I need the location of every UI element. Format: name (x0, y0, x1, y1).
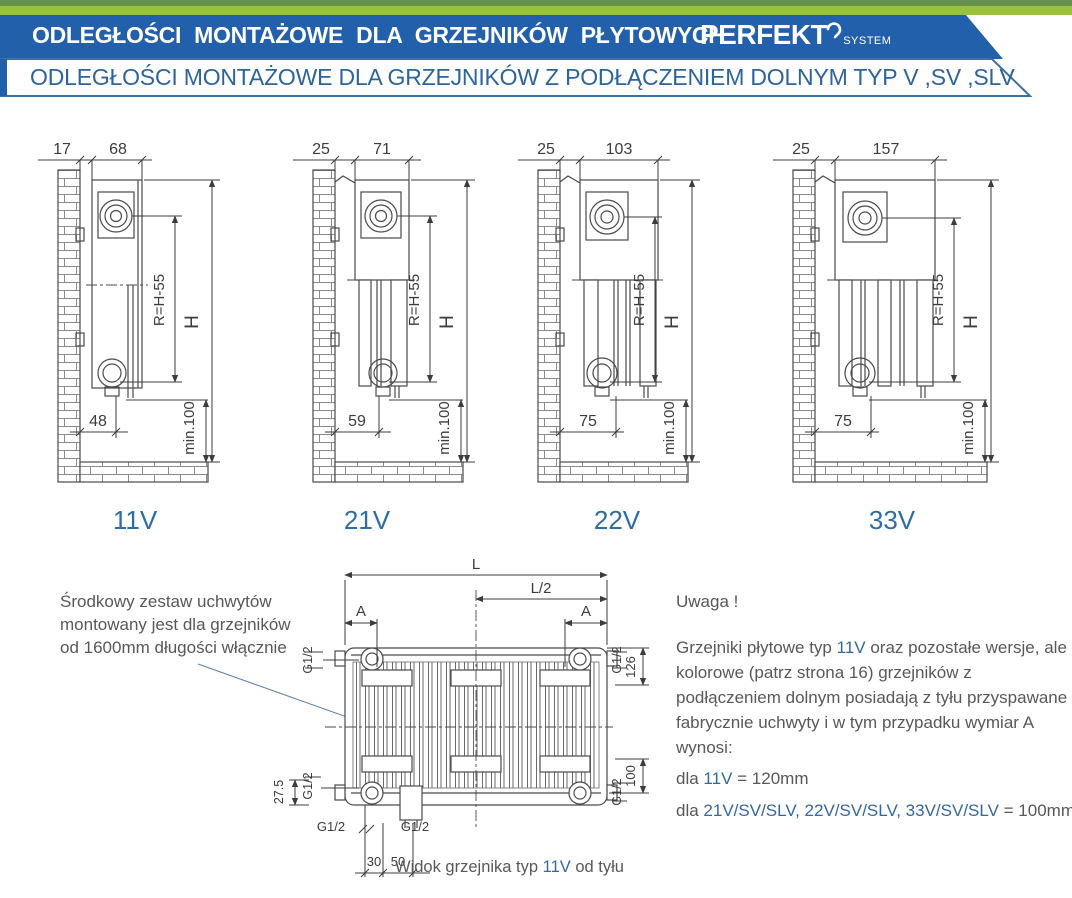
page-title: ODLEGŁOŚCI MONTAŻOWE DLA GRZEJNIKÓW PŁYT… (32, 22, 725, 49)
note-right-title: Uwaga ! (676, 590, 1072, 613)
value-type-11v: 11V (703, 769, 732, 788)
brand-sub: SYSTEM (843, 35, 891, 47)
paragraph-prefix: Grzejniki płytowe typ (676, 638, 837, 657)
drawing-33v: 25 157 75 R=H-55 H min.100 (765, 130, 1065, 545)
page: ODLEGŁOŚCI MONTAŻOWE DLA GRZEJNIKÓW PŁYT… (0, 0, 1072, 898)
radiator-body (811, 176, 935, 398)
dim-length: L (472, 556, 480, 573)
drawing-21v: 25 71 59 R=H-55 H min.100 (285, 130, 520, 545)
dim-half-length: L/2 (531, 580, 552, 597)
note-right-line-11v: dla 11V = 120mm (676, 767, 1072, 790)
value-rest: = 100mm (999, 801, 1072, 820)
note-left-line2: montowany jest dla grzejników (60, 613, 291, 636)
drawing-11v: 17 68 48 R=H-55 H min.100 (30, 130, 265, 545)
type-label-21v: 21V (332, 505, 402, 536)
dim-a-left: A (356, 603, 366, 620)
dim-min: min.100 (436, 401, 453, 454)
dim-height: H (662, 315, 683, 329)
type-label-22v: 22V (582, 505, 652, 536)
thread-top-left: G1/2 (301, 646, 315, 673)
dim-depth: 103 (606, 141, 633, 158)
dim-bottom-offset: 48 (89, 413, 107, 430)
brand-name: PERFEKT (700, 18, 827, 52)
brand-hook-icon (826, 20, 842, 42)
dim-wall-gap: 17 (53, 141, 71, 158)
note-left-line1: Środkowy zestaw uchwytów (60, 590, 291, 613)
dla-prefix-2: dla (676, 801, 703, 820)
dim-126: 126 (623, 656, 638, 678)
caption-type: 11V (543, 858, 571, 876)
radiator-body (331, 176, 409, 398)
drawing-22v: 25 103 75 R=H-55 H min.100 (510, 130, 755, 545)
value-types-rest: 21V/SV/SLV, 22V/SV/SLV, 33V/SV/SLV (703, 801, 999, 820)
green-strip-light (0, 6, 1072, 15)
paragraph-type: 11V (837, 638, 866, 657)
dim-bottom-offset: 75 (834, 413, 852, 430)
radiator-body (76, 180, 142, 398)
dim-min: min.100 (960, 401, 977, 454)
dim-depth: 68 (109, 141, 127, 158)
thread-bottom-port-right: G1/2 (401, 819, 429, 834)
thread-bottom-port-left: G1/2 (317, 819, 345, 834)
dim-radius: R=H-55 (930, 274, 947, 326)
dim-bottom-offset: 75 (579, 413, 597, 430)
dim-wall-gap: 25 (792, 141, 810, 158)
value-11v: = 120mm (732, 769, 808, 788)
dim-a-right: A (581, 603, 591, 620)
note-left: Środkowy zestaw uchwytów montowany jest … (60, 590, 291, 659)
dim-height: H (437, 315, 458, 329)
note-right: Uwaga ! Grzejniki płytowe typ 11V oraz p… (676, 590, 1072, 822)
dim-wall-gap: 25 (537, 141, 555, 158)
dim-radius: R=H-55 (151, 274, 168, 326)
note-right-line-rest: dla 21V/SV/SLV, 22V/SV/SLV, 33V/SV/SLV =… (676, 799, 1072, 822)
thread-bottom-left: G1/2 (301, 772, 315, 799)
caption-prefix: Widok grzejnika typ (395, 858, 543, 876)
dim-height: H (961, 315, 982, 329)
dim-depth: 71 (373, 141, 391, 158)
page-subtitle: ODLEGŁOŚCI MONTAŻOWE DLA GRZEJNIKÓW Z PO… (30, 64, 1015, 91)
dim-height: H (182, 315, 203, 329)
type-label-11v: 11V (100, 505, 170, 536)
dim-wall-gap: 25 (312, 141, 330, 158)
dla-prefix-1: dla (676, 769, 703, 788)
note-right-paragraph: Grzejniki płytowe typ 11V oraz pozostałe… (676, 635, 1072, 760)
dim-30: 30 (367, 854, 381, 869)
note-left-line3: od 1600mm długości włącznie (60, 636, 291, 659)
thread-bottom-right: G1/2 (610, 778, 624, 805)
dim-radius: R=H-55 (406, 274, 423, 326)
dim-min: min.100 (181, 401, 198, 454)
brand-logo: PERFEKT SYSTEM (700, 18, 891, 52)
dim-27-5: 27.5 (272, 780, 286, 804)
dim-bottom-offset: 59 (348, 413, 366, 430)
dim-depth: 157 (873, 141, 900, 158)
dim-min: min.100 (661, 401, 678, 454)
dim-radius: R=H-55 (631, 274, 648, 326)
caption-suffix: od tyłu (571, 858, 624, 876)
thread-top-right: G1/2 (610, 646, 624, 673)
type-label-33v: 33V (857, 505, 927, 536)
rear-view-drawing: L L/2 A A G1/2 G1/2 126 G1/2 100 27.5 G1… (265, 555, 670, 895)
rear-view-caption: Widok grzejnika typ 11V od tyłu (395, 858, 624, 877)
dim-100: 100 (623, 765, 638, 787)
